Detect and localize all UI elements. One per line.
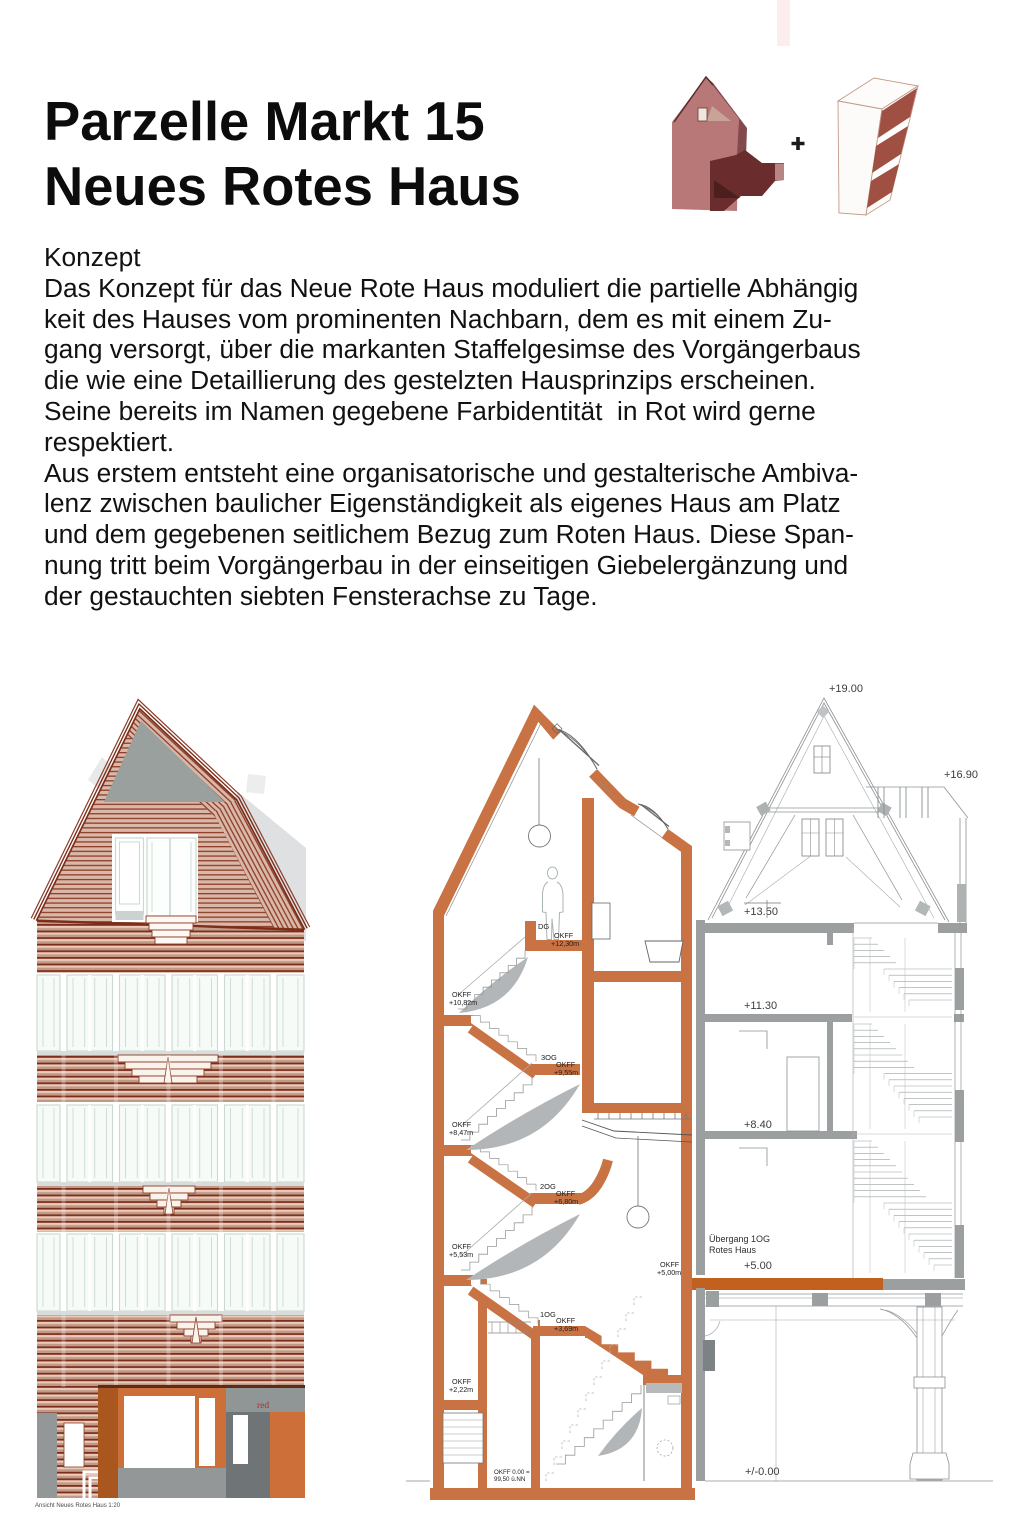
svg-text:Übergang 1OG: Übergang 1OG [709,1234,770,1244]
svg-text:+6,80m: +6,80m [554,1197,578,1206]
svg-text:red: red [257,1401,269,1411]
svg-text:+5,00m: +5,00m [657,1268,681,1277]
svg-text:+12,30m: +12,30m [551,939,579,948]
svg-text:OKFF 0.00 =: OKFF 0.00 = [494,1469,530,1476]
svg-text:+11.30: +11.30 [744,1000,777,1012]
svg-text:+10,82m: +10,82m [449,998,477,1007]
svg-text:+8.40: +8.40 [744,1119,772,1131]
svg-text:+9,55m: +9,55m [554,1068,578,1077]
svg-text:+16.90: +16.90 [944,769,978,781]
svg-text:Ansicht Neues Rotes Haus 1:20: Ansicht Neues Rotes Haus 1:20 [35,1503,121,1509]
svg-text:Rotes Haus: Rotes Haus [709,1245,757,1255]
svg-text:+/-0.00: +/-0.00 [745,1466,780,1478]
svg-text:+5,53m: +5,53m [449,1250,473,1259]
svg-text:2OG: 2OG [540,1182,556,1191]
svg-text:99,50 ü.NN: 99,50 ü.NN [494,1476,525,1483]
svg-text:+8,47m: +8,47m [449,1128,473,1137]
svg-text:+19.00: +19.00 [829,683,863,695]
svg-text:+3,69m: +3,69m [554,1324,578,1333]
svg-text:DG: DG [538,922,549,931]
svg-text:+5.00: +5.00 [744,1260,772,1272]
svg-text:3OG: 3OG [541,1053,557,1062]
svg-text:+13.50: +13.50 [744,906,778,918]
svg-text:+2,22m: +2,22m [449,1385,473,1394]
svg-text:1OG: 1OG [540,1310,556,1319]
